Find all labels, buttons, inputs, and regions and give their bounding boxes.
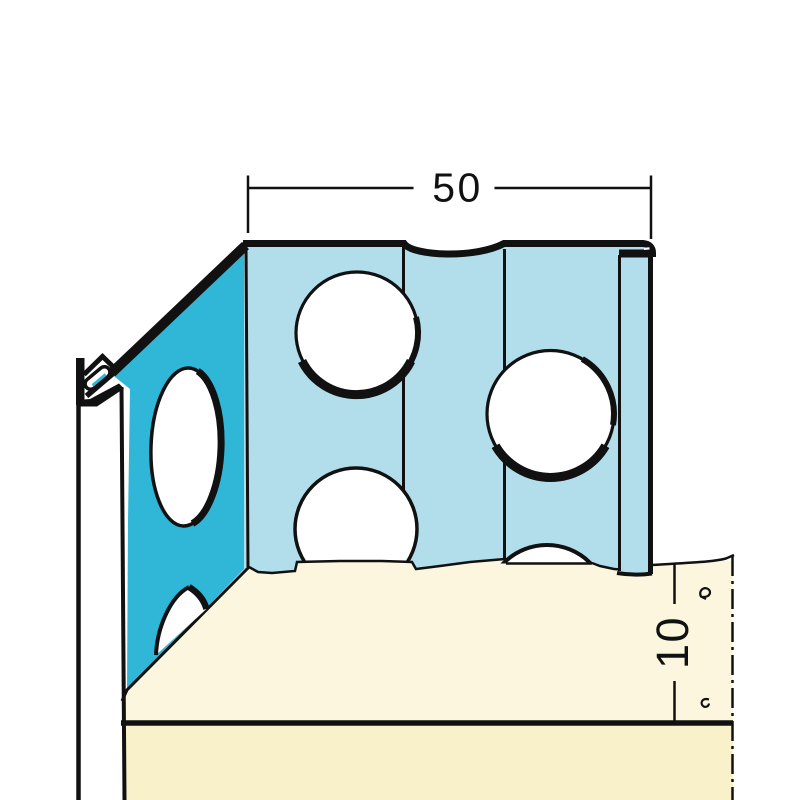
svg-text:50: 50 — [432, 165, 483, 211]
svg-text:10: 10 — [647, 616, 698, 669]
